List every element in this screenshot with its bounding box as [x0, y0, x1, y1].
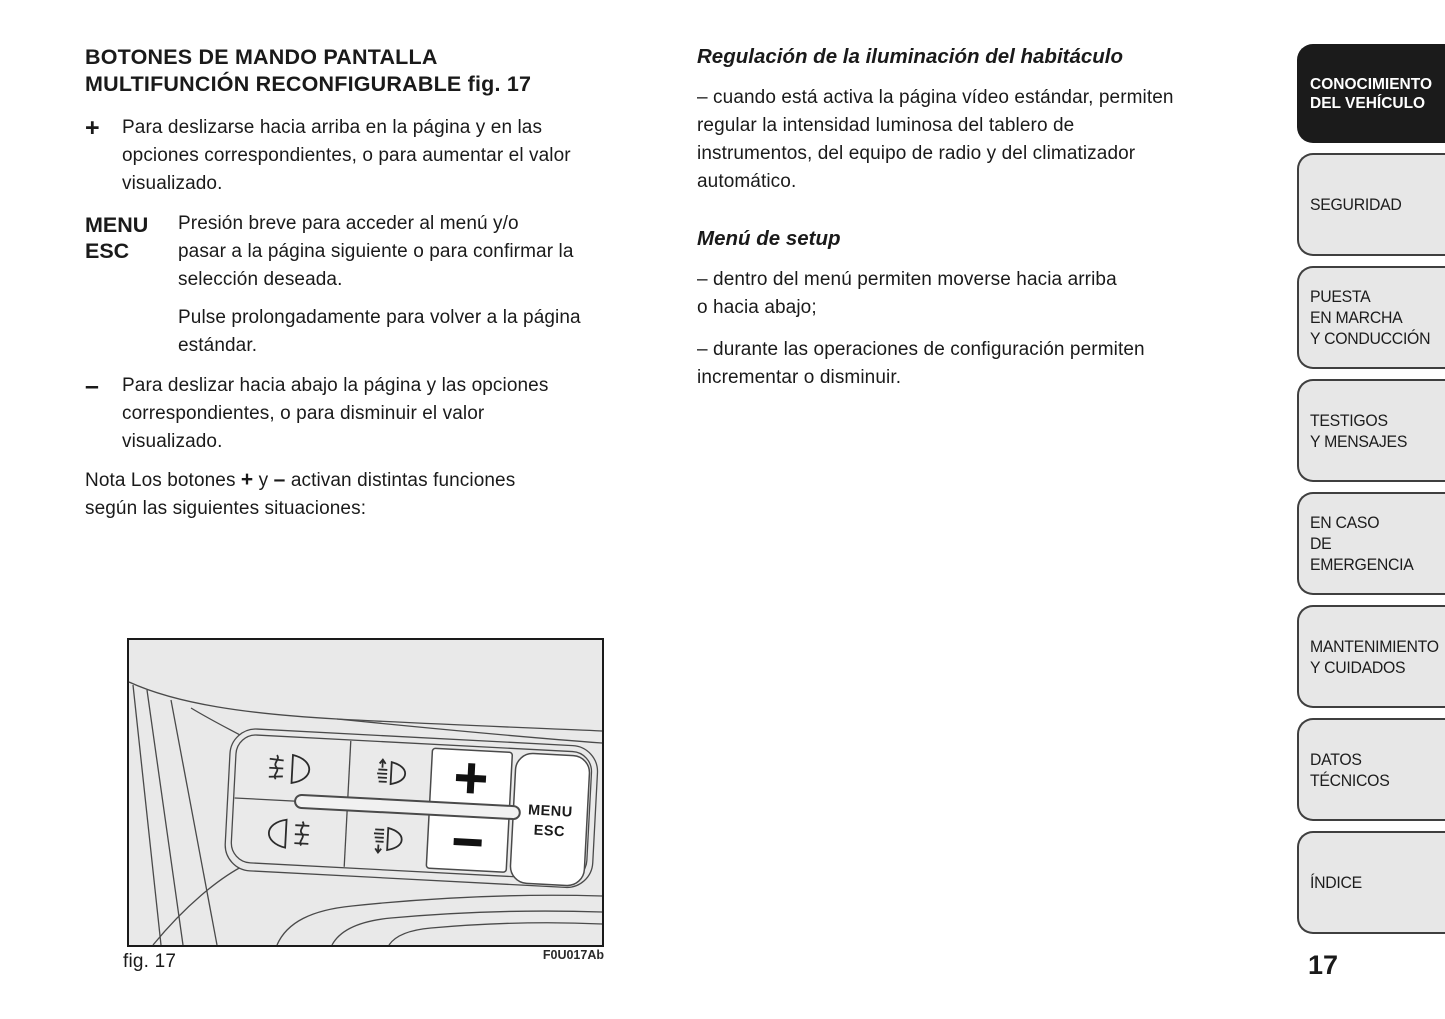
section-heading-setup-menu: Menú de setup: [697, 226, 1282, 252]
manual-page: BOTONES DE MANDO PANTALLA MULTIFUNCIÓN R…: [0, 0, 1445, 1019]
menu-esc-symbol: MENU ESC: [85, 210, 178, 360]
menu-esc-texts: Presión breve para acceder al menú y/o p…: [178, 210, 581, 360]
tab-label: EN CASO DE EMERGENCIA: [1310, 512, 1436, 575]
sidebar-tab-seguridad[interactable]: SEGURIDAD: [1297, 153, 1445, 256]
tab-label: TESTIGOS Y MENSAJES: [1310, 410, 1407, 452]
menu-esc-text-2: Pulse prolongadamente para volver a la p…: [178, 304, 581, 360]
note-part-2: y: [253, 470, 273, 491]
note-plus-symbol: +: [241, 468, 253, 491]
figure-code: F0U017Ab: [127, 948, 604, 962]
plus-symbol: +: [85, 114, 122, 198]
page-number: 17: [1308, 950, 1338, 981]
middle-column: Regulación de la iluminación del habitác…: [697, 44, 1282, 392]
left-column: BOTONES DE MANDO PANTALLA MULTIFUNCIÓN R…: [85, 44, 685, 523]
tab-label: PUESTA EN MARCHA Y CONDUCCIÓN: [1310, 286, 1430, 349]
tab-label: SEGURIDAD: [1310, 194, 1401, 215]
sidebar-tab-mantenimiento-y-cuidados[interactable]: MANTENIMIENTO Y CUIDADOS: [1297, 605, 1445, 708]
tab-label: CONOCIMIENTO DEL VEHÍCULO: [1310, 75, 1432, 113]
figure-menu-label: MENU: [528, 802, 573, 820]
tab-label: DATOS TÉCNICOS: [1310, 749, 1436, 791]
sidebar-tab-datos-tecnicos[interactable]: DATOS TÉCNICOS: [1297, 718, 1445, 821]
note-text: Nota Los botones + y – activan distintas…: [85, 466, 685, 523]
cabin-lighting-paragraph: – cuando está activa la página vídeo est…: [697, 84, 1282, 196]
page-title: BOTONES DE MANDO PANTALLA MULTIFUNCIÓN R…: [85, 44, 685, 98]
menu-esc-description: MENU ESC Presión breve para acceder al m…: [85, 210, 685, 360]
sidebar-tab-conocimiento-del-vehiculo[interactable]: CONOCIMIENTO DEL VEHÍCULO: [1297, 44, 1445, 143]
sidebar-tab-indice[interactable]: ÍNDICE: [1297, 831, 1445, 934]
sidebar-tab-testigos-y-mensajes[interactable]: TESTIGOS Y MENSAJES: [1297, 379, 1445, 482]
sidebar-tab-en-caso-de-emergencia[interactable]: EN CASO DE EMERGENCIA: [1297, 492, 1445, 595]
dashboard-buttons-drawing: MENU ESC: [127, 638, 604, 947]
note-part-1: Nota Los botones: [85, 470, 241, 491]
button-panel: MENU ESC: [224, 728, 599, 889]
tab-label: MANTENIMIENTO Y CUIDADOS: [1310, 636, 1439, 678]
minus-symbol: –: [85, 372, 122, 456]
menu-esc-text-1: Presión breve para acceder al menú y/o p…: [178, 210, 581, 294]
tab-label: ÍNDICE: [1310, 872, 1362, 893]
minus-button-description: – Para deslizar hacia abajo la página y …: [85, 372, 685, 456]
figure-esc-label: ESC: [533, 823, 565, 841]
plus-description-text: Para deslizarse hacia arriba en la págin…: [122, 114, 571, 198]
section-heading-cabin-lighting: Regulación de la iluminación del habitác…: [697, 44, 1282, 70]
setup-menu-paragraph-2: – durante las operaciones de configuraci…: [697, 336, 1282, 392]
plus-button-description: + Para deslizarse hacia arriba en la pág…: [85, 114, 685, 198]
minus-glyph: [454, 841, 482, 842]
note-minus-symbol: –: [274, 468, 286, 491]
minus-description-text: Para deslizar hacia abajo la página y la…: [122, 372, 548, 456]
chapter-tab-sidebar: CONOCIMIENTO DEL VEHÍCULO SEGURIDAD PUES…: [1297, 44, 1445, 934]
sidebar-tab-puesta-en-marcha-y-conduccion[interactable]: PUESTA EN MARCHA Y CONDUCCIÓN: [1297, 266, 1445, 369]
setup-menu-paragraph-1: – dentro del menú permiten moverse hacia…: [697, 266, 1282, 322]
figure-17-illustration: MENU ESC: [127, 638, 604, 947]
